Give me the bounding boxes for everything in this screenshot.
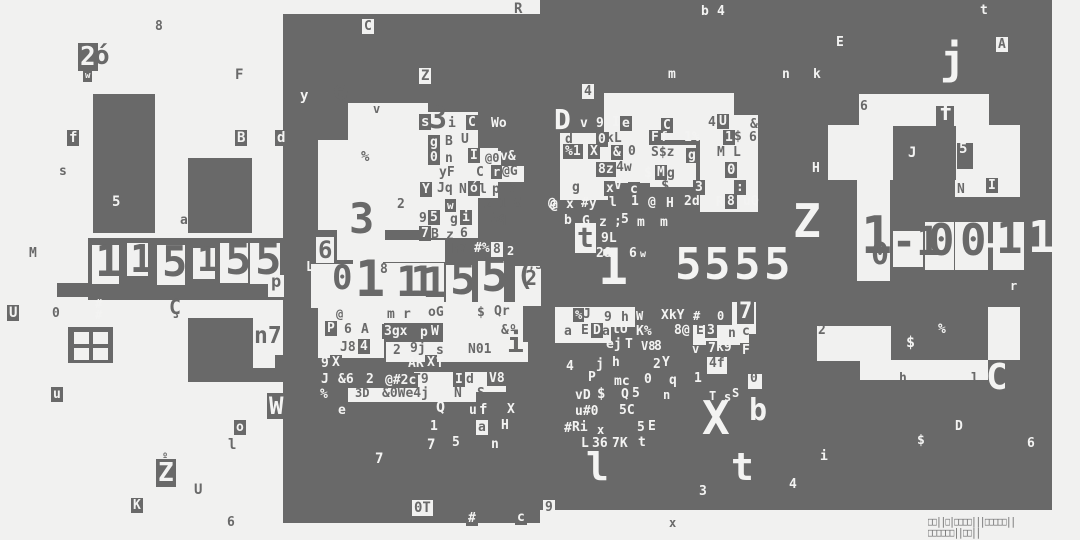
glyph: 0 [428,150,440,165]
light-block [93,332,108,344]
glyph: J [583,308,591,321]
glyph: oG [428,306,444,319]
glyph: 5C [619,404,635,417]
glyph: c [515,510,527,525]
glyph: T [623,337,635,352]
glyph: l [586,448,609,486]
glyph: B [235,130,247,146]
glyph: Z [484,198,492,211]
glyph: v [373,103,380,115]
glyph: u [51,387,63,402]
glyph: e [620,116,632,131]
glyph: n [728,327,736,340]
glyph: vD [573,388,593,403]
glyph: d [466,373,474,386]
light-block [817,326,891,361]
glyph: 0 [715,309,726,323]
glyph: m [668,68,676,81]
glyph: S$z [651,146,674,159]
glyph: u#0 [573,404,600,419]
glyph: uQ [743,195,759,208]
glyph: 5 [225,238,252,282]
glyph: x [669,517,676,529]
glyph: yF [439,166,455,179]
glyph: 5 [450,258,477,302]
glyph: 0 [928,219,955,263]
glyph: G [514,197,522,210]
glyph: h [612,356,620,369]
dark-block [93,94,155,233]
glyph: 1 [996,217,1023,261]
glyph: Wo [491,117,507,130]
glyph: p [492,183,500,196]
glyph: b [564,214,572,227]
glyph: T9 [413,373,429,386]
glyph: m [387,308,395,321]
glyph: d [275,130,287,146]
glyph: %1 [563,144,583,159]
dark-block [188,158,252,233]
glyph: $ [597,387,605,401]
glyph: 5 [637,421,645,434]
glyph: 5 [162,241,187,283]
glyph: w [445,199,456,212]
glyph: tU [612,323,628,336]
glyph: D [554,106,571,134]
glyph: U [461,133,469,146]
glyph: 2 [395,197,407,212]
glyph: j [940,39,965,81]
glyph: I [468,148,480,163]
glyph: c [742,325,750,338]
light-block [988,307,1020,360]
glyph: N01 [468,343,491,356]
glyph: g [428,135,440,150]
glyph: J8 [340,341,356,354]
glyph: 0 [750,372,758,385]
glyph: L [306,261,314,274]
glyph: I [986,178,998,193]
glyph: X [588,144,600,159]
glyph: E [581,324,589,337]
glyph: R [514,2,522,16]
glyph: 5 [112,195,120,209]
glyph: J [321,373,329,386]
glyph: M [29,247,37,260]
glyph: Ç [169,297,181,317]
glyph: % [938,323,946,336]
glyph: 6 [227,516,235,529]
glyph: l [609,196,617,209]
glyph: 0T [412,500,433,516]
glyph: 0 [332,261,352,295]
glyph: 1 [1028,216,1055,260]
light-block [74,348,89,360]
glyph: 9 [321,357,329,370]
glyph: 4 [708,116,716,129]
glyph: F [235,68,243,82]
glyph: Ri [572,421,588,434]
glyph: AR [408,357,424,370]
glyph: 2d [684,195,700,208]
glyph: i [448,117,456,130]
glyph: b [701,5,709,18]
glyph: f [939,103,952,125]
glyph: i [460,210,472,225]
glyph: $ [906,335,915,350]
glyph: B [431,228,439,241]
glyph: 7 [419,226,431,241]
glyph: 1 [428,419,440,434]
glyph: l [228,438,236,452]
glyph: V8 [487,371,507,386]
glyph: 8 [380,263,388,276]
glyph: 5 [959,142,967,156]
glyph: @G [502,165,518,178]
glyph: 2 [393,344,401,357]
glyph: 9 [419,212,427,225]
glyph: ej [606,338,622,351]
glyph: 4 [717,5,725,18]
glyph: y [300,89,308,103]
glyph: 3gx [382,324,409,339]
glyph: XkY [661,309,684,322]
glyph: i [507,329,524,357]
glyph: 8 [725,194,737,209]
glyph: 1 [95,240,122,284]
glyph: U [7,305,19,321]
glyph: r [1010,280,1017,292]
glyph: t [636,435,648,450]
glyph: m [637,216,645,229]
glyph: 1 [130,240,153,278]
glyph: @ [336,308,343,320]
glyph: E [836,36,844,49]
glyph: 7 [427,438,435,452]
glyph: R [716,196,724,209]
glyph: 1 [499,198,507,211]
glyph: 5 [481,252,509,298]
glyph: K [131,498,143,513]
glyph: Z [419,68,431,84]
glyph: e [333,78,349,104]
glyph: a [564,325,572,338]
glyph: 4 [787,477,799,492]
glyph: f [479,403,487,417]
glyph: &0We4j [382,387,429,400]
glyph: $ [734,130,742,143]
glyph: n7 [254,325,282,348]
glyph: T [436,357,444,370]
glyph: 7 [737,300,754,324]
glyph: Q [436,400,445,415]
glyph: 4 [582,84,594,99]
glyph: U [717,114,729,129]
glyph: A [361,323,369,336]
glyph: r [403,308,411,321]
glyph: 9 [596,117,604,130]
dark-block [188,318,253,382]
barcode-text: □□||□|□□□□|||□□□□□||□□□□□□||□□|| [928,516,1028,538]
glyph: $ [915,433,927,448]
glyph: v [580,117,588,130]
glyph: n [661,388,672,402]
glyph: a [476,420,488,435]
glyph: 8 [654,340,662,353]
glitch-canvas: 82ówFfsBd5aMU0Ç##uWolºZUK6115155pn7RCZb4… [0,0,1080,540]
glyph: #y [581,197,597,210]
glyph: U [194,483,202,497]
glyph: N [957,183,965,196]
glyph: 8z [596,162,616,177]
glyph: Q [621,388,629,401]
glyph: h [899,372,907,385]
glyph: z [599,216,607,229]
glyph: 1 [422,262,447,304]
glyph: 0 [871,240,889,270]
glyph: n [489,437,501,452]
glyph: l [971,372,979,385]
glyph: a [180,214,188,227]
glyph: @ [648,196,656,209]
glyph: 5 [704,243,731,287]
glyph: 1 [598,242,628,292]
glyph: g [572,181,580,194]
glyph: l [479,183,487,196]
glyph: % [320,388,328,401]
glyph: n [782,68,790,81]
glyph: C [986,360,1008,396]
glyph: C [466,115,478,130]
glyph: kL [606,132,622,145]
glyph: v [692,343,699,355]
glyph: # [691,309,702,323]
glyph: 2 [364,372,376,387]
glyph: 1 [629,194,641,209]
glyph: 5 [764,243,791,287]
glyph: 5 [428,210,440,225]
glyph: 4 [358,339,370,354]
glyph: H [812,162,820,175]
glyph: W [267,393,285,419]
glyph: p [420,326,428,339]
light-block [859,94,989,125]
glyph: 5 [450,435,462,450]
glyph: 6 [629,247,637,260]
glyph: Y [662,356,670,369]
glyph: 0 [52,307,60,320]
glyph: I [453,372,465,387]
glyph: f [660,131,668,144]
glyph: F [740,343,752,358]
glyph: o [234,420,246,435]
glyph: 5 [621,213,629,226]
glyph: X [330,355,342,370]
glyph: B [445,135,453,148]
glyph: 3 [705,323,717,338]
glyph: S [732,387,739,399]
glyph: 1 [197,243,217,277]
glyph: S [477,387,485,400]
glyph: t [575,223,596,253]
glyph: 0 [628,145,636,158]
glyph: u [467,403,479,418]
glyph: ó [94,43,110,69]
glyph: V [614,179,622,192]
glyph: H [666,197,674,210]
glyph: $ [661,179,669,193]
glyph: 3 [699,485,707,498]
glyph: k [813,68,821,81]
glyph: X [507,403,515,416]
glyph: E [696,324,704,337]
glyph: # [466,511,478,526]
glyph: N [459,183,467,196]
glyph: M [717,146,725,159]
glyph: Qr [494,305,510,318]
glyph: W [429,324,441,339]
light-block [74,332,89,344]
glyph: 6 [1027,437,1035,450]
glyph: n [445,152,453,165]
glyph: 6 [344,323,352,336]
glyph: 1% [684,131,700,144]
glyph: 2 [818,324,826,337]
glyph: N [454,387,462,400]
glyph: 1 [694,372,702,385]
glyph: w [83,71,92,82]
glyph: 5 [630,386,642,401]
glyph: i [818,449,830,464]
glyph: P [588,371,596,384]
glyph: W [636,310,643,322]
glyph: 9 [604,311,612,324]
glyph: 3 [693,180,705,195]
glyph: k9 [716,341,732,354]
glyph: 4 [564,359,576,374]
glyph: t [731,448,754,486]
glyph: 3 [429,104,447,134]
glyph: Y [420,182,432,197]
glyph: e [338,404,346,417]
glyph: 2 [525,268,537,288]
glyph: j [596,358,604,371]
glyph: 6 [749,131,757,144]
glyph: H [499,418,511,433]
glyph: L [733,146,741,159]
glyph: 7 [373,451,385,467]
glyph: 4f [709,357,725,370]
glyph: % [361,150,369,164]
glyph: 9 [543,500,555,515]
glyph: m [660,216,668,229]
glyph: g [450,213,458,226]
glyph: # [95,309,102,321]
glyph: 7K [612,437,628,450]
glyph: 0 [725,162,737,178]
glyph: p [271,274,281,291]
glyph: 4w [616,161,632,174]
glyph: @0 [483,151,501,165]
glyph: b [749,396,767,426]
glyph: D [955,420,963,433]
glyph: v& [500,150,516,163]
glyph: $ [644,166,652,180]
glyph: Jq [437,182,453,195]
glyph: Z [156,459,176,487]
glyph: @ [548,197,556,210]
glyph: 8 [155,20,163,33]
glyph: q [669,374,677,387]
glyph: 9j [410,342,426,355]
glyph: 6 [860,100,868,113]
glyph: C [476,166,484,179]
glyph: g [686,148,698,163]
glyph: $ [477,306,485,319]
glyph: 3 [349,198,374,240]
glyph: P [325,321,337,336]
glyph: 5 [734,243,761,287]
glyph: z [446,229,454,242]
glyph: x [597,424,604,436]
glyph: 5 [675,243,702,287]
glyph: Z [793,198,821,244]
glyph: X [702,395,730,441]
glyph: K% [636,325,652,338]
glyph: E [646,419,658,434]
glyph: & [611,145,623,160]
light-block [93,348,108,360]
glyph: C [362,19,374,34]
glyph: b [508,182,516,195]
glyph: 6 [460,227,468,240]
glyph: 8@ [674,324,690,337]
glyph: r [491,165,502,179]
glyph: w [640,250,646,260]
glyph: t [980,4,988,17]
glyph: A [996,37,1008,52]
glyph: f [67,130,79,146]
glyph: : [734,180,746,195]
glyph: &6 [336,372,356,387]
light-block [860,360,988,380]
glyph: J [908,146,916,160]
glyph: 3D [355,387,369,399]
glyph: Aq [491,212,507,225]
glyph: s [59,165,67,178]
glyph: I [612,116,620,129]
glyph: 0 [644,373,652,386]
glyph: x [566,198,574,211]
